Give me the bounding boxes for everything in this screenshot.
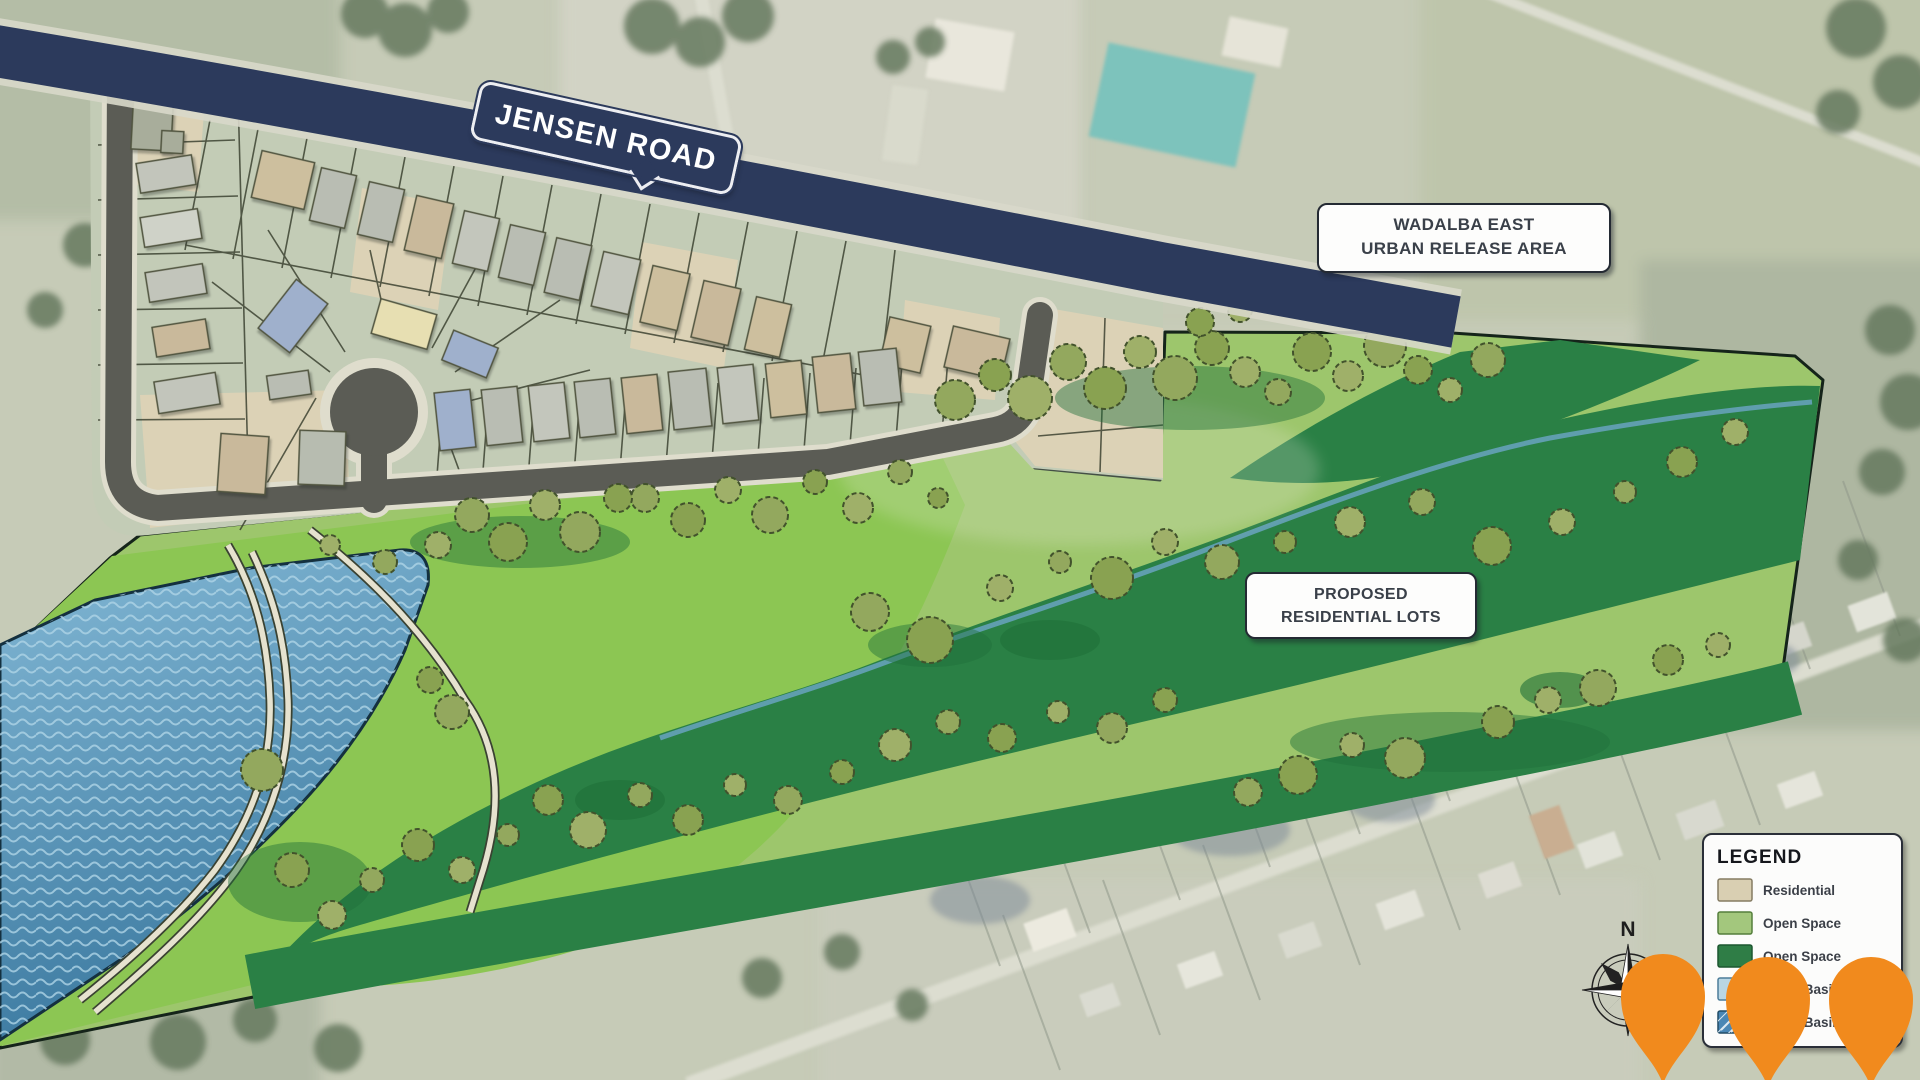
area-callout-line1: WADALBA EAST [1319, 213, 1609, 237]
map-pin-icon[interactable] [1722, 953, 1814, 1080]
map-pin-icon[interactable] [1825, 953, 1917, 1080]
proposed-lots-line1: PROPOSED [1247, 583, 1475, 606]
area-callout-line2: URBAN RELEASE AREA [1319, 237, 1609, 261]
compass-north-label: N [1580, 918, 1676, 942]
legend-title: LEGEND [1717, 847, 1888, 869]
legend-item-open-space-light: Open Space [1717, 911, 1888, 935]
residential-swatch [1717, 878, 1753, 902]
map-pin-icon[interactable] [1617, 950, 1709, 1080]
proposed-lots-callout: PROPOSED RESIDENTIAL LOTS [1245, 572, 1477, 639]
area-callout: WADALBA EAST URBAN RELEASE AREA [1317, 203, 1611, 273]
proposed-lots-line2: RESIDENTIAL LOTS [1247, 606, 1475, 629]
legend-item-residential: Residential [1717, 878, 1888, 902]
open-space-light-swatch [1717, 911, 1753, 935]
site-map: JENSEN ROAD WADALBA EAST URBAN RELEASE A… [0, 0, 1920, 1080]
